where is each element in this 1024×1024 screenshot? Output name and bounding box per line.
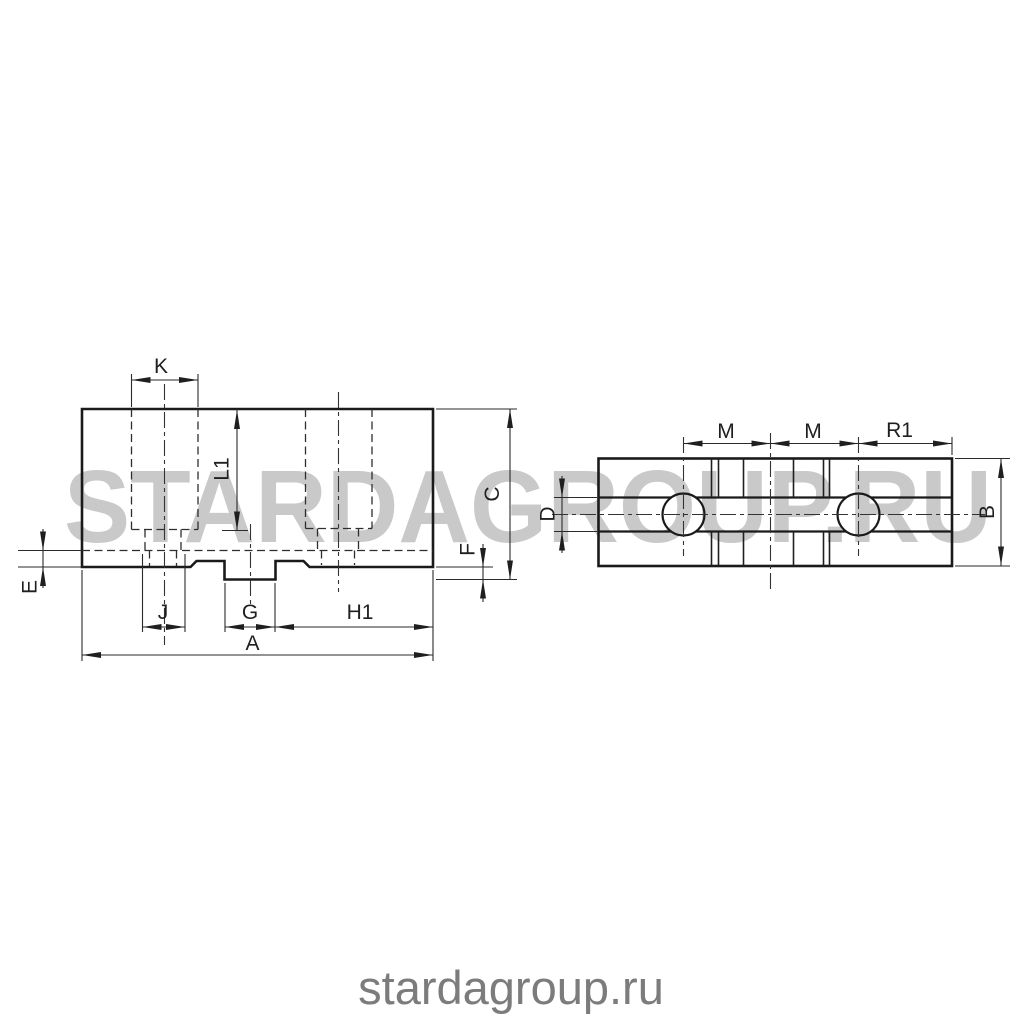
dim-label-r1: R1	[886, 419, 913, 442]
footer-site-text: stardagroup.ru	[358, 961, 664, 1014]
dim-label-b: B	[976, 505, 999, 519]
watermark-text: STARDAGROUP.RU	[64, 449, 992, 564]
dim-h1: H1	[275, 601, 433, 630]
dim-label-a: A	[245, 632, 259, 655]
dim-label-h1: H1	[347, 601, 374, 624]
dim-label-m-right: M	[804, 420, 822, 443]
dim-label-m-left: M	[717, 420, 735, 443]
dim-label-d: D	[537, 506, 560, 521]
dim-label-c: C	[481, 486, 504, 501]
dim-label-g: G	[242, 601, 258, 624]
dim-label-k: K	[154, 355, 168, 378]
dim-label-e: E	[19, 580, 42, 594]
dim-label-j: J	[158, 601, 169, 624]
page: STARDAGROUP.RU	[0, 0, 1024, 1024]
dim-label-f: F	[457, 543, 480, 556]
technical-drawing: STARDAGROUP.RU	[0, 0, 1024, 1024]
dim-label-l1: L1	[211, 457, 234, 480]
